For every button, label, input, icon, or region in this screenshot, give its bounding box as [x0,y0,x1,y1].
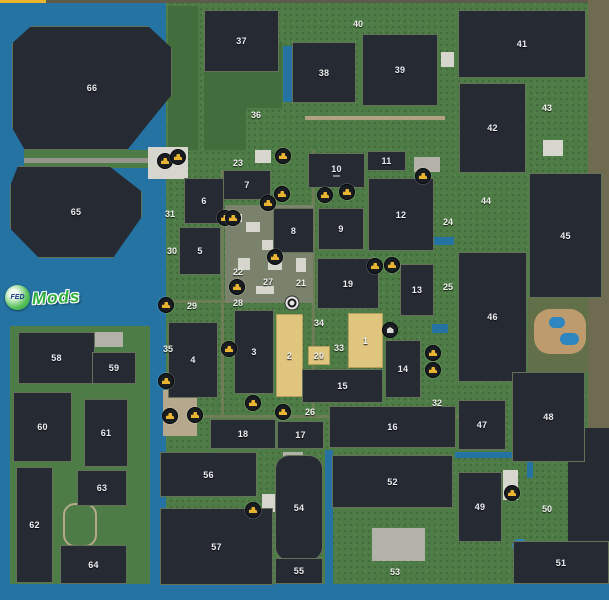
field-label-23: 23 [233,158,243,168]
field-number: 4 [190,355,195,365]
field-number: 37 [236,36,246,46]
field-number: 5 [197,246,202,256]
field-64[interactable]: 64 [60,545,127,584]
sale-marker-icon[interactable] [158,297,174,313]
sale-glyph [229,215,237,221]
sale-marker-icon[interactable] [245,502,261,518]
sale-glyph [321,192,329,198]
sale-glyph [249,400,257,406]
sale-glyph [162,378,170,384]
field-57[interactable]: 57 [160,508,273,585]
field-label-35: 35 [163,344,173,354]
field-label-24: 24 [443,217,453,227]
field-20[interactable]: 20 [308,346,330,365]
field-number: 46 [487,312,497,322]
field-label-50: 50 [542,504,552,514]
beach-pond [549,317,565,328]
fedmods-watermark: FED Mods [5,285,80,310]
sale-glyph [174,154,182,160]
shop-glyph [288,299,297,308]
field-number: 10 [331,164,341,174]
sale-glyph [166,413,174,419]
field-sub-mark [333,175,340,177]
sale-glyph [264,200,272,206]
sale-glyph [419,173,427,179]
field-2[interactable]: 2 [276,314,303,397]
field-10[interactable]: 10 [308,153,365,188]
field-number: 41 [517,39,527,49]
water-strip [283,46,292,102]
field-4[interactable]: 4 [168,322,218,398]
field-number: 61 [101,428,111,438]
field-number: 54 [294,503,304,513]
sale-glyph [429,350,437,356]
field-number: 15 [337,381,347,391]
field-17[interactable]: 17 [277,421,324,449]
field-number: 38 [319,68,329,78]
sale-marker-icon[interactable] [221,341,237,357]
field-38[interactable]: 38 [292,42,356,103]
field-48[interactable]: 48 [512,372,585,462]
field-47[interactable]: 47 [458,400,506,450]
field-number: 57 [211,542,221,552]
field-60[interactable]: 60 [13,392,72,462]
field-number: 12 [396,210,406,220]
field-16[interactable]: 16 [329,406,456,448]
field-3[interactable]: 3 [234,310,274,394]
field-number: 64 [88,560,98,570]
sale-marker-icon[interactable] [425,345,441,361]
fedmods-wordmark: Mods [32,286,81,309]
field-61[interactable]: 61 [84,399,128,467]
field-58[interactable]: 58 [18,332,95,384]
field-39[interactable]: 39 [362,34,438,106]
sale-glyph [508,490,516,496]
field-number: 6 [201,196,206,206]
field-number: 39 [395,65,405,75]
field-number: 19 [343,279,353,289]
field-number: 56 [203,470,213,480]
field-number: 58 [51,353,61,363]
sale-glyph [191,412,199,418]
field-1[interactable]: 1 [348,313,383,368]
field-42[interactable]: 42 [459,83,526,173]
field-label-25: 25 [443,282,453,292]
field-number: 20 [314,351,324,361]
field-label-44: 44 [481,196,491,206]
field-45[interactable]: 45 [529,173,602,298]
field-46[interactable]: 46 [458,252,527,382]
field-11[interactable]: 11 [367,151,406,171]
sale-glyph [429,367,437,373]
sale-glyph [225,346,233,352]
field-number: 63 [97,483,107,493]
sale-marker-icon[interactable] [339,184,355,200]
fedmods-logo-icon: FED [5,285,30,310]
field-number: 52 [387,477,397,487]
sale-marker-icon[interactable] [274,186,290,202]
field-label-30: 30 [167,246,177,256]
poi-marker-icon[interactable] [382,322,398,338]
sale-marker-icon[interactable] [425,362,441,378]
field-number: 45 [560,231,570,241]
field-18[interactable]: 18 [210,419,276,449]
field-number: 59 [109,363,119,373]
field-label-40: 40 [353,19,363,29]
sale-glyph [161,158,169,164]
field-label-31: 31 [165,209,175,219]
sale-glyph [278,191,286,197]
field-label-21: 21 [296,278,306,288]
building [441,52,454,67]
field-62[interactable]: 62 [16,467,53,583]
field-15[interactable]: 15 [302,369,383,403]
sale-marker-icon[interactable] [504,485,520,501]
building [372,528,425,561]
sale-marker-icon[interactable] [384,257,400,273]
field-label-43: 43 [542,103,552,113]
field-number: 9 [338,224,343,234]
field-12[interactable]: 12 [368,178,434,251]
water-bottom [0,584,609,600]
sale-glyph [271,254,279,260]
building [93,332,123,347]
field-number: 7 [244,180,249,190]
field-number: 18 [238,429,248,439]
field-number: 2 [287,351,292,361]
sale-glyph [249,507,257,513]
field-52[interactable]: 52 [332,455,453,508]
sale-glyph [371,263,379,269]
field-label-27: 27 [263,277,273,287]
field-number: 60 [37,422,47,432]
field-number: 55 [294,566,304,576]
sale-marker-icon[interactable] [229,279,245,295]
sale-marker-icon[interactable] [415,168,431,184]
field-9[interactable]: 9 [318,208,364,250]
field-5[interactable]: 5 [179,227,221,275]
race-track [63,503,97,547]
fedmods-logo-text: FED [11,294,25,301]
field-label-53: 53 [390,567,400,577]
field-number: 14 [398,364,408,374]
field-56[interactable]: 56 [160,452,257,497]
field-number: 51 [556,558,566,568]
field-number: 65 [71,207,81,217]
beach [534,309,586,354]
field-49[interactable]: 49 [458,472,502,542]
field-51[interactable]: 51 [513,541,609,584]
water-inlet [432,324,448,333]
field-number: 66 [87,83,97,93]
field-number: 17 [295,430,305,440]
sale-marker-icon[interactable] [260,195,276,211]
farm-fields-map: 1234567891011121314151617181920373839414… [0,0,609,600]
sale-marker-icon[interactable] [245,395,261,411]
water-inlet [434,237,454,245]
sale-glyph [279,153,287,159]
field-63[interactable]: 63 [77,470,127,506]
field-number: 11 [382,156,392,166]
field-number: 3 [251,347,256,357]
sale-marker-icon[interactable] [162,408,178,424]
field-number: 47 [477,420,487,430]
shop-marker-icon[interactable] [285,296,300,311]
sale-marker-icon[interactable] [267,249,283,265]
field-label-26: 26 [305,407,315,417]
field-label-34: 34 [314,318,324,328]
field-14[interactable]: 14 [385,340,421,398]
sale-glyph [162,302,170,308]
field-41[interactable]: 41 [458,10,586,78]
field-label-32: 32 [432,398,442,408]
field-65[interactable]: 65 [10,166,142,258]
field-label-36: 36 [251,110,261,120]
field-label-28: 28 [233,298,243,308]
field-54[interactable]: 54 [275,455,323,561]
sale-glyph [233,284,241,290]
field-37[interactable]: 37 [204,10,279,72]
field-number: 13 [412,285,422,295]
sale-glyph [279,409,287,415]
sale-glyph [343,189,351,195]
field-number: 1 [363,336,368,346]
field-number: 16 [387,422,397,432]
farm-building [246,222,260,232]
building [255,150,271,163]
sale-marker-icon[interactable] [187,407,203,423]
field-55[interactable]: 55 [275,558,323,584]
sale-marker-icon[interactable] [275,404,291,420]
field-label-22: 22 [233,267,243,277]
field-59[interactable]: 59 [92,352,136,384]
sale-marker-icon[interactable] [367,258,383,274]
beach-pond [560,333,579,345]
field-13[interactable]: 13 [400,264,434,316]
sale-marker-icon[interactable] [225,210,241,226]
field-number: 48 [543,412,553,422]
field-number: 62 [29,520,39,530]
field-label-29: 29 [187,301,197,311]
forest-west [168,6,198,150]
sale-marker-icon[interactable] [158,373,174,389]
sale-glyph [388,262,396,268]
field-8[interactable]: 8 [273,208,314,253]
field-label-33: 33 [334,343,344,353]
road-north [305,116,445,120]
farm-building [296,258,306,272]
farm-building [256,286,274,294]
forest-36 [204,66,246,150]
field-number: 49 [475,502,485,512]
field-number: 8 [291,226,296,236]
field-number: 42 [487,123,497,133]
poi-glyph [387,327,394,333]
sale-marker-icon[interactable] [275,148,291,164]
building [543,140,563,156]
sale-marker-icon[interactable] [170,149,186,165]
sale-marker-icon[interactable] [317,187,333,203]
